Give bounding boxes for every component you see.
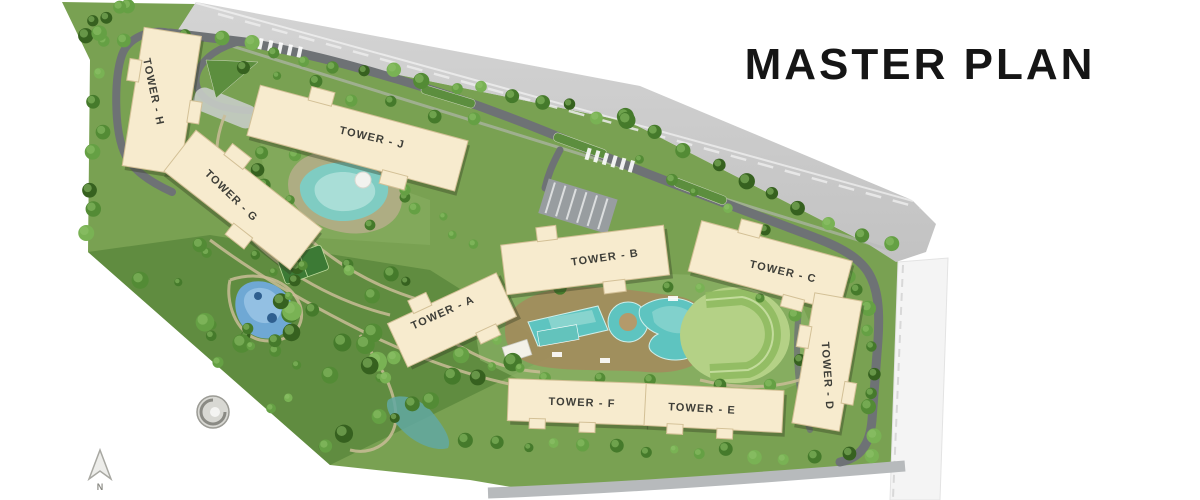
north-arrow: N (89, 450, 111, 492)
master-plan-page: TOWER - H TOWER - G TOWER - J TOWER - A … (0, 0, 1200, 500)
north-label: N (97, 482, 104, 492)
amphitheater-spiral (197, 396, 229, 428)
pool-deck-feature (355, 172, 371, 188)
page-title: MASTER PLAN (700, 40, 1140, 90)
d-shaped-lawn (680, 287, 790, 383)
tower-f-label: TOWER - F (548, 396, 616, 410)
